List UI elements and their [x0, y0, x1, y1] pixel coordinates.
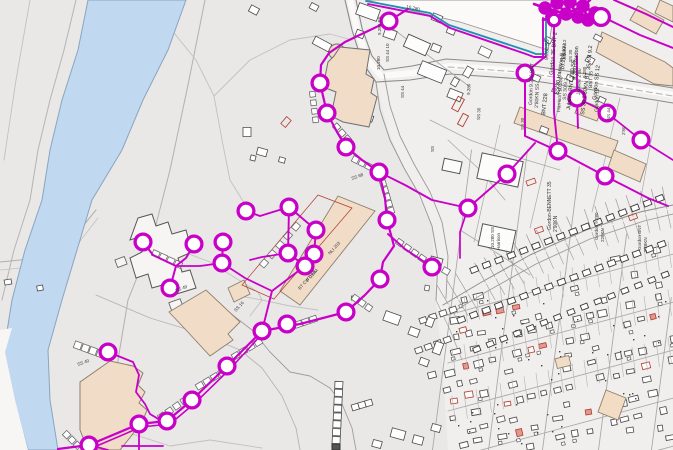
svg-text:Gordon BNT: Gordon BNT: [637, 224, 642, 250]
svg-text:SS 44: SS 44: [606, 107, 611, 120]
svg-text:Harrison: Harrison: [496, 232, 501, 250]
svg-text:10.280: 10.280: [376, 56, 381, 70]
svg-text:2'28KN: 2'28KN: [643, 237, 648, 252]
svg-text:2'80: 2'80: [621, 126, 626, 135]
svg-text:228KN: 228KN: [600, 228, 605, 242]
svg-text:Gordon 9.280: Gordon 9.280: [594, 212, 599, 240]
svg-text:9.280 SS: 9.280 SS: [377, 16, 382, 35]
svg-text:SS 44: SS 44: [400, 85, 405, 98]
svg-text:9.280: 9.280: [466, 83, 471, 95]
svg-text:SS: SS: [430, 146, 435, 152]
svg-text:10.280 SS: 10.280 SS: [490, 227, 495, 248]
svg-text:SS 30: SS 30: [476, 107, 481, 120]
svg-text:SS 30: SS 30: [520, 117, 525, 130]
svg-text:SS 44 10: SS 44 10: [385, 43, 390, 62]
svg-text:2'90KN: 2'90KN: [553, 215, 559, 232]
svg-text:2'80KN SS: 2'80KN SS: [534, 83, 541, 108]
